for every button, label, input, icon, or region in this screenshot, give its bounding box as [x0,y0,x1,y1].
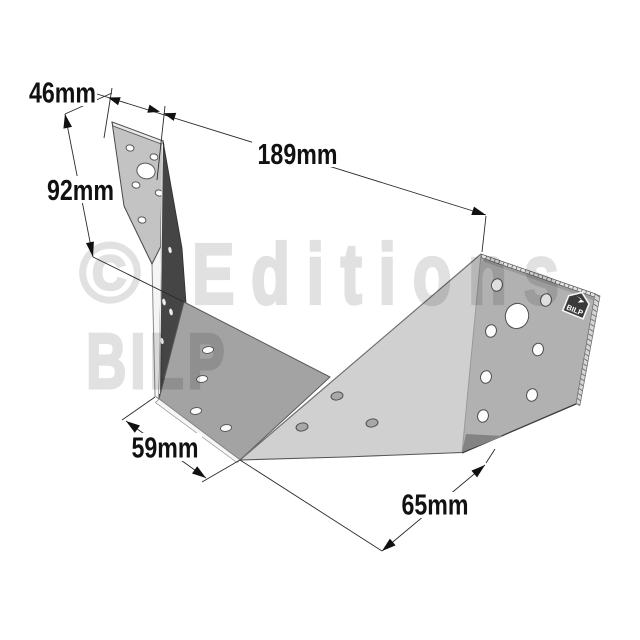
svg-text:59mm: 59mm [131,431,198,464]
svg-text:Editions: Editions [192,227,575,322]
svg-text:189mm: 189mm [258,137,338,170]
svg-text:65mm: 65mm [401,488,468,521]
svg-text:BILP: BILP [86,318,228,405]
svg-text:46mm: 46mm [29,76,96,109]
svg-text:©: © [79,226,141,320]
svg-text:92mm: 92mm [47,173,114,206]
